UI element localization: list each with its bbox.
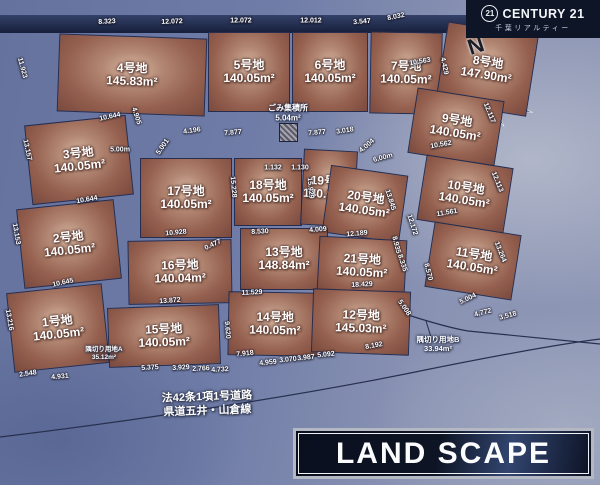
- dimension-label: 2.766: [192, 365, 210, 373]
- plot-area: 148.84m²: [258, 259, 309, 272]
- plot-area: 140.05m²: [304, 72, 355, 85]
- land-plot: 14号地 140.05m²: [227, 291, 322, 357]
- land-plot: 12号地 145.03m²: [311, 288, 411, 355]
- land-plot: 17号地 140.05m²: [140, 158, 232, 238]
- brand-row: 21 CENTURY 21: [481, 5, 584, 22]
- land-plot: 6号地 140.05m²: [292, 32, 368, 112]
- dimension-label: 5.375: [141, 364, 159, 372]
- land-plot: 10号地 140.05m²: [416, 155, 513, 234]
- dimension-label: 5.00m: [110, 147, 130, 154]
- road-designation-label: 法42条1項1号道路 県道五井・山倉線: [162, 388, 253, 420]
- dimension-label: 12.072: [230, 18, 251, 25]
- dimension-label: 12.012: [300, 18, 321, 25]
- plot-area: 140.05m²: [242, 192, 293, 205]
- land-plot: 11号地 140.05m²: [424, 222, 521, 301]
- land-plot: 5号地 140.05m²: [208, 32, 290, 112]
- plot-area: 140.05m²: [43, 241, 95, 260]
- plot-area: 140.05m²: [160, 198, 211, 211]
- plot-area: 140.05m²: [380, 73, 432, 87]
- plot-number: 13号地: [265, 246, 302, 259]
- corner-cut-a-label: 隅切り用地A 35.12m²: [85, 346, 122, 362]
- brand-logo: 21 CENTURY 21 千葉リアルティー: [466, 0, 600, 38]
- brand-name: CENTURY 21: [502, 7, 584, 21]
- site-plan-sheet: 4号地 145.83m² 5号地 140.05m² 6号地 140.05m² 7…: [0, 0, 600, 485]
- landscape-logo-text: LAND SCAPE: [336, 437, 551, 471]
- land-plot: 16号地 140.04m²: [127, 239, 232, 305]
- plot-area: 140.05m²: [336, 265, 388, 281]
- dimension-label: 8.530: [251, 228, 269, 236]
- dimension-label: 1.130: [291, 165, 309, 172]
- corner-cut-b-label: 隅切り用地B 33.94m²: [417, 335, 460, 353]
- plot-area: 140.05m²: [223, 72, 274, 85]
- brand-subtitle: 千葉リアルティー: [495, 23, 571, 33]
- dimension-label: 18.429: [351, 281, 373, 289]
- plot-number: 6号地: [315, 59, 346, 72]
- garbage-station-box: [279, 123, 298, 142]
- land-plot: 13号地 148.84m²: [240, 228, 328, 290]
- land-plot: 9号地 140.05m²: [407, 88, 504, 167]
- plot-area: 147.90m²: [460, 65, 513, 86]
- plot-area: 140.05m²: [249, 324, 301, 338]
- dimension-label: 8.323: [98, 18, 116, 26]
- plot-area: 140.05m²: [138, 335, 190, 350]
- plot-area: 140.05m²: [32, 325, 84, 344]
- dimension-label: 11.529: [241, 289, 262, 297]
- land-plot: 4号地 145.83m²: [57, 33, 208, 116]
- garbage-station-label: ごみ集積所 5.04m²: [268, 103, 308, 122]
- plot-area: 140.04m²: [154, 272, 206, 286]
- plot-number: 17号地: [167, 185, 204, 198]
- dimension-label: 4.732: [211, 366, 229, 374]
- plot-area: 145.03m²: [335, 321, 387, 336]
- land-plot: 15号地 140.05m²: [107, 304, 221, 368]
- dimension-label: 1.132: [264, 165, 282, 172]
- land-plot: 3号地 140.05m²: [24, 115, 134, 205]
- dimension-label: 3.929: [172, 364, 190, 372]
- plot-number: 5号地: [234, 59, 265, 72]
- century21-seal-icon: 21: [481, 5, 498, 22]
- plot-area: 140.05m²: [53, 157, 105, 176]
- dimension-label: 13.872: [159, 297, 181, 305]
- land-plot: 2号地 140.05m²: [16, 199, 122, 289]
- dimension-label: 9.620: [223, 321, 232, 339]
- dimension-label: 12.072: [161, 18, 183, 26]
- landscape-logo: LAND SCAPE: [293, 428, 594, 479]
- plot-number: 18号地: [249, 179, 286, 192]
- plot-area: 145.83m²: [106, 74, 158, 89]
